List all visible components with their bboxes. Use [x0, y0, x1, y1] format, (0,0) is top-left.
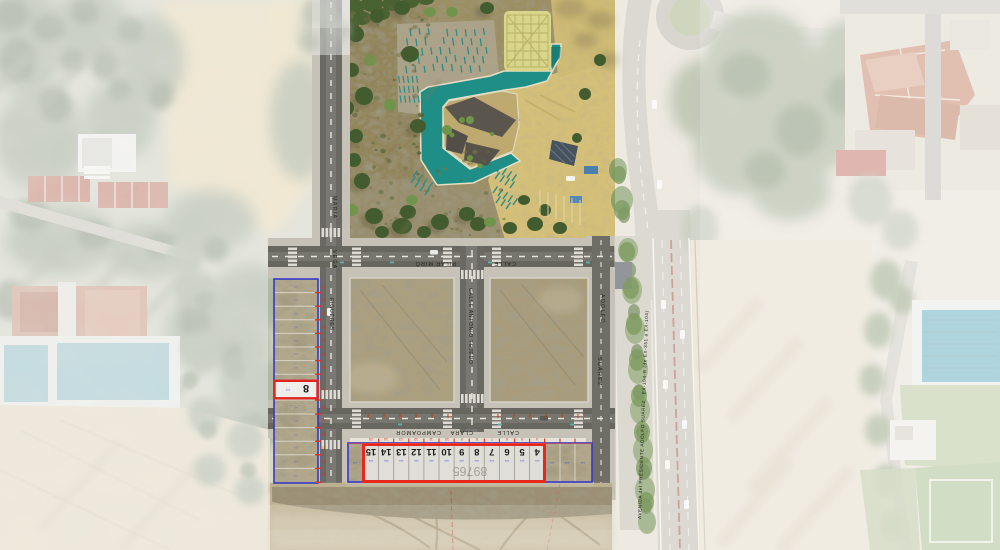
svg-text:6: 6 — [506, 437, 508, 441]
svg-text:4: 4 — [536, 437, 538, 441]
svg-text:xxx: xxx — [368, 459, 373, 463]
svg-text:28: 28 — [322, 459, 326, 463]
svg-text:12: 12 — [411, 446, 422, 457]
svg-text:19: 19 — [322, 311, 326, 315]
svg-text:CAMPOAMOR: CAMPOAMOR — [395, 429, 441, 435]
svg-text:90726: 90726 — [283, 403, 306, 412]
svg-text:9: 9 — [461, 437, 463, 441]
svg-text:13: 13 — [399, 437, 403, 441]
svg-text:89765: 89765 — [453, 464, 488, 478]
svg-text:25: 25 — [322, 418, 326, 422]
svg-text:10: 10 — [441, 446, 452, 457]
svg-text:29: 29 — [322, 472, 326, 476]
svg-text:xxx: xxx — [285, 388, 290, 392]
svg-text:9: 9 — [459, 446, 464, 457]
svg-text:xxx: xxx — [429, 459, 434, 463]
svg-text:23: 23 — [322, 365, 326, 369]
svg-text:18: 18 — [322, 298, 326, 302]
svg-text:14: 14 — [380, 446, 391, 457]
svg-text:15: 15 — [365, 446, 376, 457]
svg-text:CALLE ANTONIO TEJEDO: CALLE ANTONIO TEJEDO — [467, 288, 473, 365]
svg-text:MIRÓ: MIRÓ — [415, 260, 433, 267]
svg-text:4: 4 — [534, 446, 540, 457]
svg-text:21: 21 — [322, 338, 326, 342]
svg-text:CALLE: CALLE — [494, 260, 516, 266]
svg-text:VEGA: VEGA — [331, 250, 337, 269]
svg-text:6: 6 — [504, 446, 509, 457]
svg-text:5: 5 — [519, 446, 525, 457]
svg-text:CALLE: CALLE — [497, 429, 519, 435]
svg-text:5: 5 — [521, 437, 523, 441]
svg-text:27: 27 — [322, 445, 326, 449]
svg-text:12: 12 — [414, 437, 418, 441]
svg-text:xxx: xxx — [504, 459, 509, 463]
svg-text:xxx: xxx — [519, 459, 524, 463]
svg-text:xxx: xxx — [474, 459, 479, 463]
svg-text:ADOLFO: ADOLFO — [599, 294, 605, 324]
svg-text:20: 20 — [322, 325, 326, 329]
svg-text:8: 8 — [476, 437, 478, 441]
svg-text:26: 26 — [322, 432, 326, 436]
svg-text:xxx: xxx — [564, 461, 569, 465]
svg-text:13: 13 — [396, 446, 407, 457]
svg-text:xxx: xxx — [414, 459, 419, 463]
svg-text:xxx: xxx — [580, 461, 585, 465]
svg-text:24: 24 — [322, 405, 326, 409]
svg-text:PILAR: PILAR — [435, 260, 456, 266]
svg-text:14: 14 — [384, 437, 388, 441]
svg-text:xxx: xxx — [489, 459, 494, 463]
svg-text:7: 7 — [489, 446, 494, 457]
svg-text:xxx: xxx — [534, 459, 539, 463]
svg-text:8: 8 — [474, 446, 479, 457]
svg-text:17: 17 — [322, 285, 326, 289]
svg-text:7: 7 — [491, 437, 493, 441]
svg-text:SUÁREZ: SUÁREZ — [596, 357, 603, 387]
svg-text:22: 22 — [322, 352, 326, 356]
svg-text:xxx: xxx — [444, 459, 449, 463]
svg-text:xxx: xxx — [399, 459, 404, 463]
svg-text:8: 8 — [303, 382, 309, 394]
svg-text:FIGUERES: FIGUERES — [328, 298, 334, 331]
svg-text:CLARA: CLARA — [450, 429, 473, 435]
svg-text:15: 15 — [369, 437, 373, 441]
svg-text:11: 11 — [429, 437, 433, 441]
svg-text:xxx: xxx — [549, 461, 554, 465]
svg-text:MARIA: MARIA — [331, 196, 337, 219]
svg-text:8: 8 — [323, 387, 325, 391]
svg-text:xxx: xxx — [383, 459, 388, 463]
svg-text:xxx: xxx — [352, 461, 357, 465]
svg-text:11: 11 — [426, 446, 437, 457]
svg-text:xxx: xxx — [459, 459, 464, 463]
svg-text:10: 10 — [445, 437, 449, 441]
